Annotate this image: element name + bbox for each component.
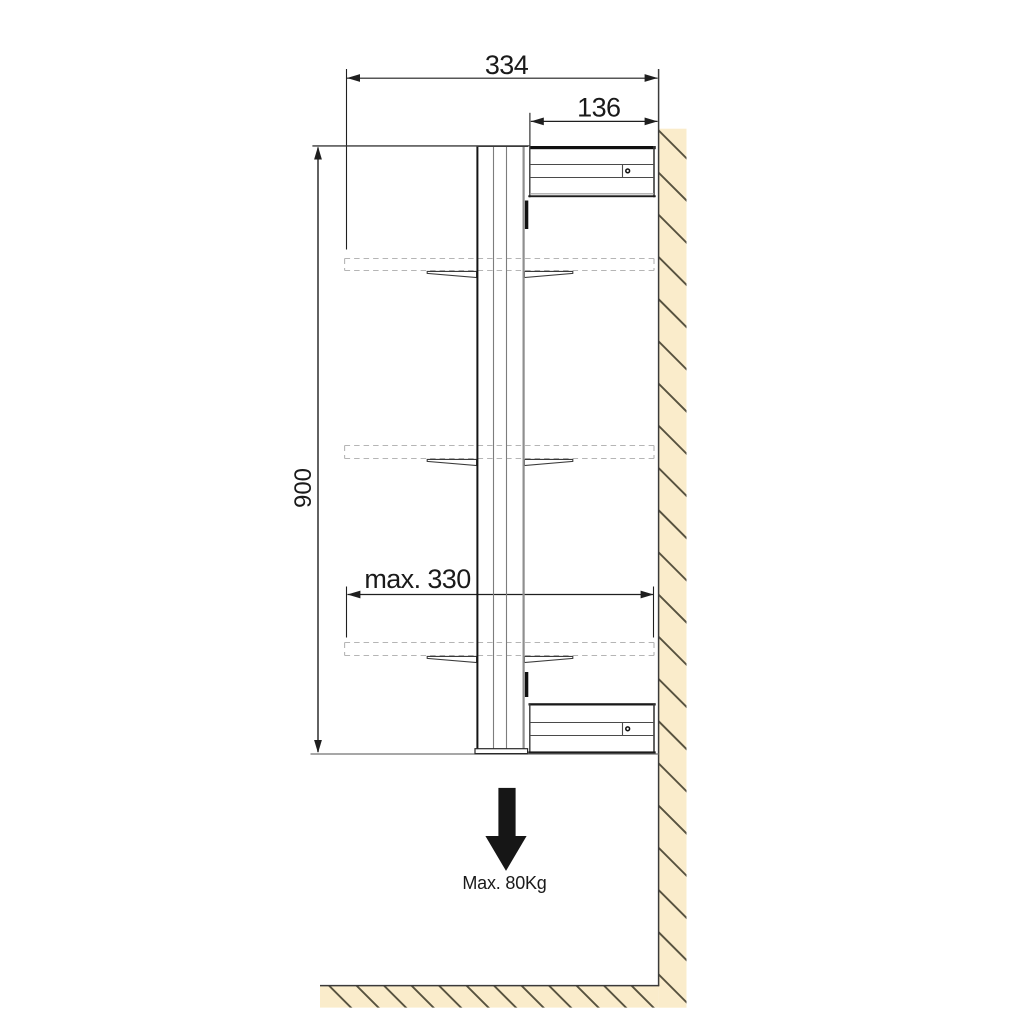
svg-text:136: 136 [577,93,620,123]
svg-text:Max. 80Kg: Max. 80Kg [462,873,546,893]
svg-text:334: 334 [485,50,529,80]
svg-text:900: 900 [290,468,317,508]
svg-text:max. 330: max. 330 [364,564,470,594]
